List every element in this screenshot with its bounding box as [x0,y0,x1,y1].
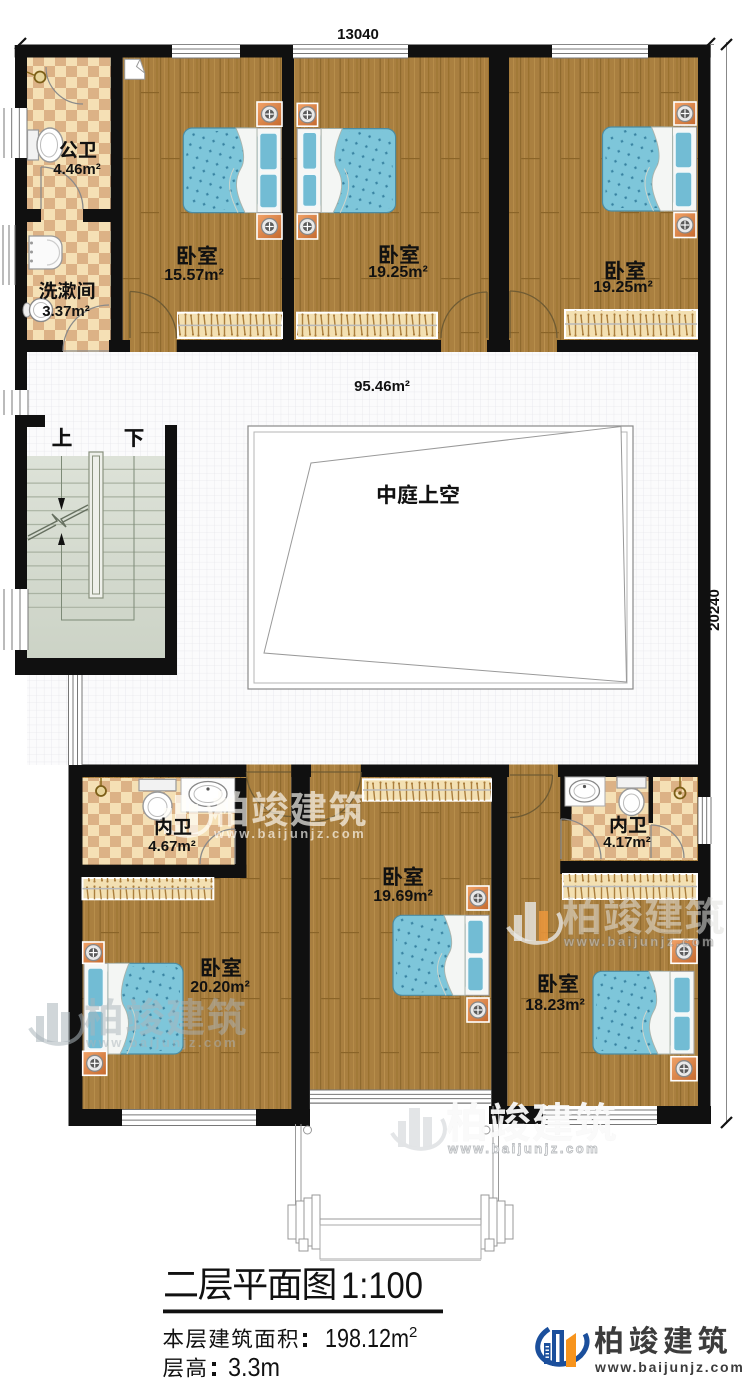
svg-text:20.20m²: 20.20m² [190,979,250,996]
svg-text:www.baijunjz.com: www.baijunjz.com [447,1141,600,1156]
svg-text:3.3m: 3.3m [228,1352,280,1382]
svg-text:4.46m²: 4.46m² [53,161,101,178]
svg-text:95.46m²: 95.46m² [354,378,410,395]
svg-text:13040: 13040 [337,26,379,43]
svg-text:2: 2 [409,1324,417,1341]
svg-text:1:100: 1:100 [341,1265,423,1306]
svg-text:19.25m²: 19.25m² [368,264,428,281]
svg-text:15.57m²: 15.57m² [164,267,224,284]
svg-text:18.23m²: 18.23m² [525,997,585,1014]
svg-text:www.baijunjz.com: www.baijunjz.com [85,1035,238,1050]
svg-text:19.25m²: 19.25m² [593,279,653,296]
svg-text:19.69m²: 19.69m² [373,888,433,905]
svg-text:4.17m²: 4.17m² [603,834,651,851]
svg-text:www.baijunjz.com: www.baijunjz.com [213,826,366,841]
svg-text:www.baijunjz.com: www.baijunjz.com [563,934,716,949]
svg-text:3.37m²: 3.37m² [42,303,90,320]
svg-text:4.67m²: 4.67m² [148,838,196,855]
svg-text:20240: 20240 [706,589,723,631]
svg-text:198.12m: 198.12m [325,1323,409,1353]
svg-text:www.baijunjz.com: www.baijunjz.com [594,1359,745,1375]
